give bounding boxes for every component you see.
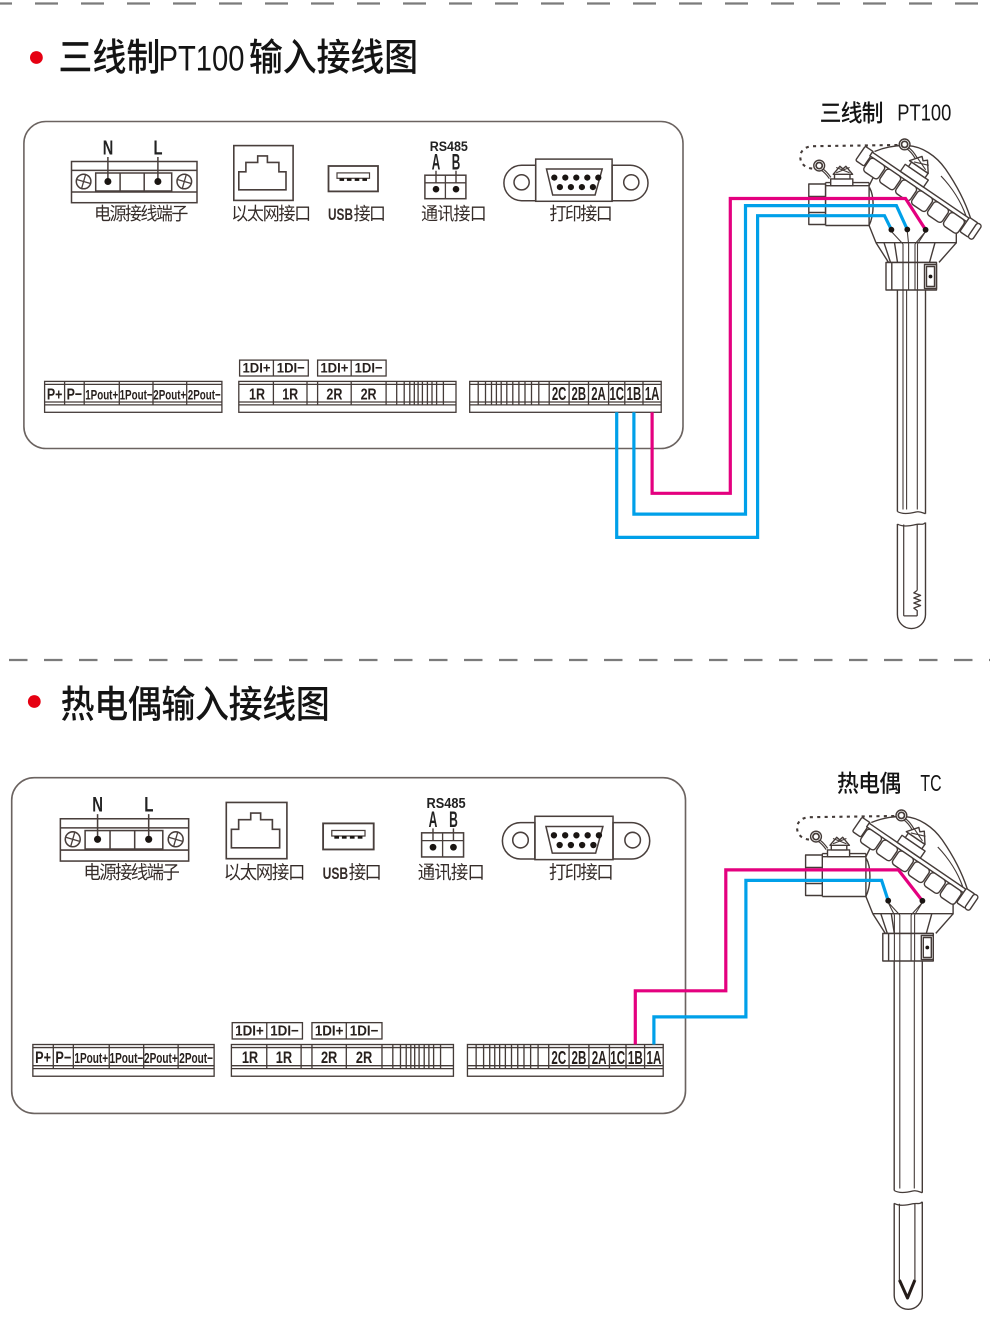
svg-text:1Pout+: 1Pout+ (74, 1051, 108, 1067)
svg-text:1R: 1R (282, 387, 298, 404)
svg-text:1A: 1A (647, 1047, 662, 1068)
svg-text:2R: 2R (356, 1049, 372, 1067)
svg-text:1R: 1R (276, 1049, 292, 1067)
svg-text:1A: 1A (645, 384, 660, 404)
svg-text:1DI−: 1DI− (270, 1023, 299, 1039)
svg-text:1C: 1C (609, 384, 624, 404)
svg-text:2Pout−: 2Pout− (179, 1051, 213, 1067)
svg-text:1R: 1R (242, 1049, 258, 1067)
svg-text:P−: P− (55, 1049, 71, 1067)
svg-text:2R: 2R (361, 387, 377, 404)
svg-text:USB: USB (323, 864, 349, 883)
svg-text:N: N (103, 136, 114, 159)
svg-text:1DI+: 1DI+ (315, 1023, 344, 1039)
svg-text:USB: USB (328, 206, 353, 224)
svg-text:2C: 2C (552, 384, 567, 404)
svg-text:TC: TC (920, 770, 941, 796)
svg-text:2Pout−: 2Pout− (188, 387, 221, 403)
svg-text:PT100: PT100 (159, 39, 245, 78)
svg-text:N: N (92, 793, 103, 816)
svg-text:PT100: PT100 (897, 100, 951, 126)
svg-text:L: L (154, 136, 163, 159)
svg-text:P+: P+ (35, 1049, 51, 1067)
svg-text:1DI−: 1DI− (350, 1023, 379, 1039)
svg-text:1DI−: 1DI− (355, 360, 383, 376)
svg-text:1DI+: 1DI+ (320, 360, 348, 376)
svg-text:A: A (429, 807, 438, 832)
svg-text:P−: P− (67, 387, 83, 404)
svg-text:1R: 1R (249, 387, 265, 404)
svg-text:2Pout+: 2Pout+ (144, 1051, 178, 1067)
svg-text:1B: 1B (628, 1047, 643, 1068)
svg-text:1C: 1C (610, 1047, 625, 1068)
svg-text:2R: 2R (326, 387, 342, 404)
svg-text:B: B (449, 807, 458, 832)
svg-text:2A: 2A (592, 1047, 607, 1068)
svg-text:B: B (452, 150, 461, 175)
svg-text:2Pout+: 2Pout+ (153, 387, 186, 403)
svg-text:2C: 2C (551, 1047, 566, 1068)
svg-text:1Pout−: 1Pout− (120, 387, 153, 403)
svg-text:1DI−: 1DI− (277, 360, 305, 376)
svg-text:1Pout+: 1Pout+ (85, 387, 118, 403)
svg-text:1DI+: 1DI+ (235, 1023, 264, 1039)
svg-text:A: A (432, 150, 441, 175)
svg-text:2A: 2A (591, 384, 606, 404)
svg-text:1DI+: 1DI+ (243, 360, 271, 376)
svg-text:L: L (144, 793, 153, 816)
svg-text:1Pout−: 1Pout− (110, 1051, 144, 1067)
svg-text:2R: 2R (321, 1049, 337, 1067)
svg-text:P+: P+ (47, 387, 63, 404)
svg-text:2B: 2B (572, 1047, 587, 1068)
svg-text:2B: 2B (572, 384, 587, 404)
svg-text:1B: 1B (627, 384, 642, 404)
